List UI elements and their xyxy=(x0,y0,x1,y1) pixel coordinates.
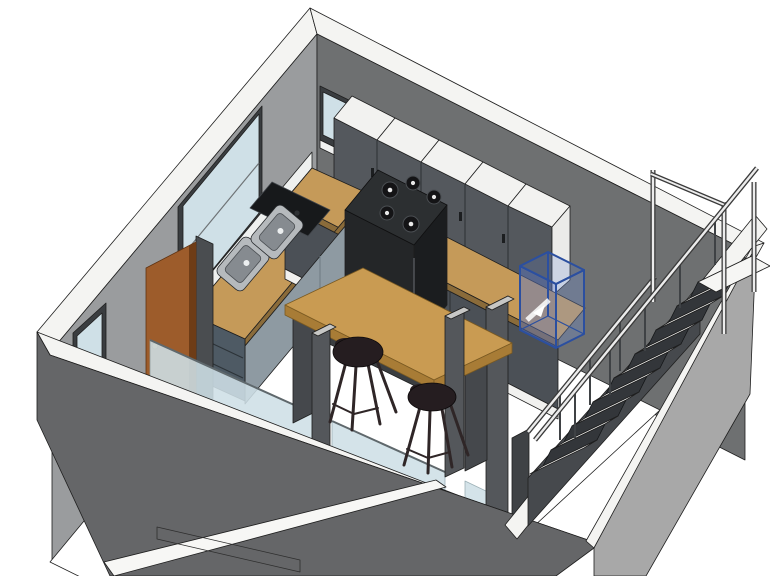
stool-seat xyxy=(333,337,383,367)
selected-element-box[interactable] xyxy=(520,252,584,348)
faucet xyxy=(294,210,299,215)
model-canvas[interactable] xyxy=(0,0,770,576)
stool-seat xyxy=(408,383,456,411)
model-viewport[interactable] xyxy=(0,0,770,576)
